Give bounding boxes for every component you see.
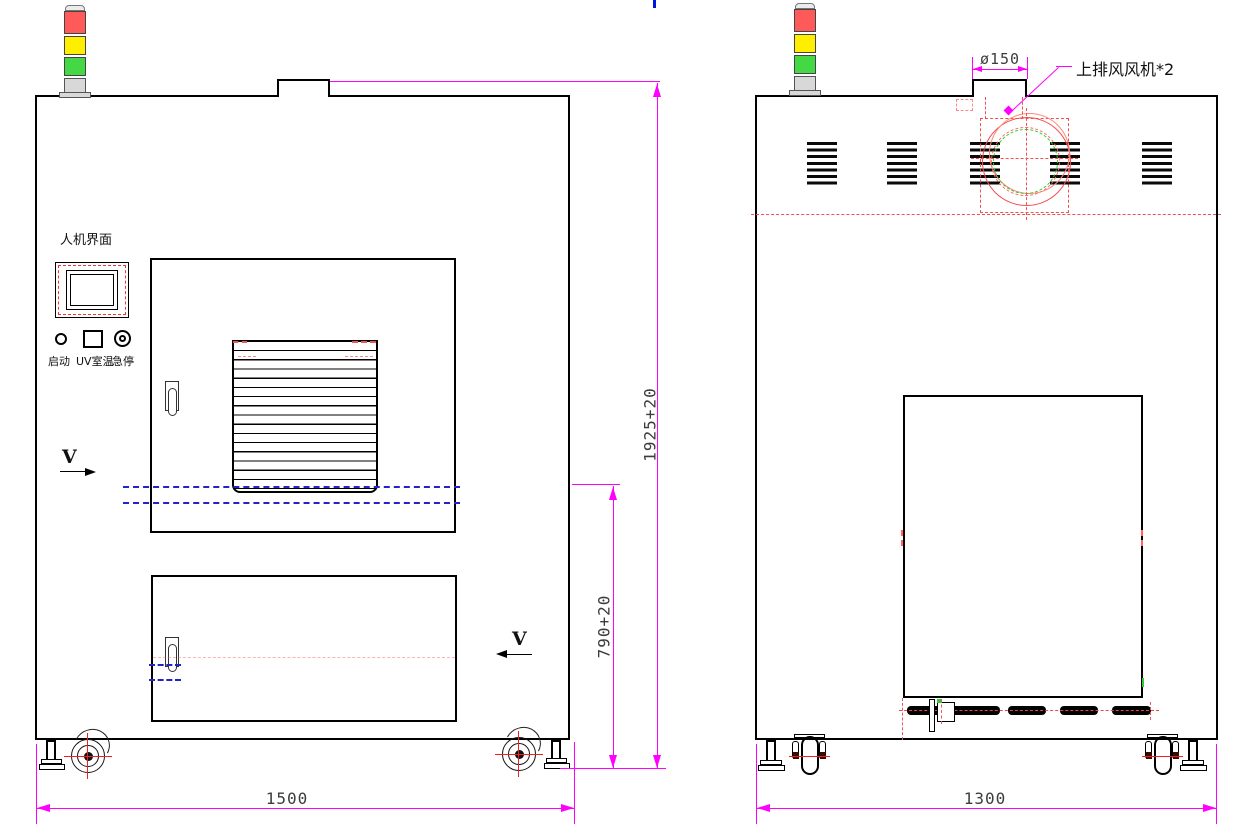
door-edge-mark [901, 530, 903, 546]
lower-door-handle-grip [168, 644, 177, 672]
hidden-shelf-line [123, 502, 460, 504]
rail-hidden-line [902, 698, 903, 740]
uv-temp-label: UV室温 [76, 353, 114, 369]
caster-centerline [518, 731, 519, 777]
front-tower-green-lamp-icon [64, 57, 86, 76]
caster-centerline [495, 754, 543, 755]
front-exhaust-duct [277, 79, 330, 97]
start-button-icon [55, 333, 67, 345]
louver-hinge-mark [345, 356, 373, 357]
section-marker-v1-line [60, 471, 87, 472]
vent-louver-group [807, 142, 837, 188]
vent-louver-group [887, 142, 917, 188]
extension-line [560, 768, 666, 769]
duct-flange-hidden [956, 99, 973, 111]
side-exhaust-duct [972, 79, 1027, 97]
rail-bracket-block [937, 702, 955, 722]
door-edge-mark [1141, 530, 1143, 546]
extension-line [756, 744, 757, 824]
leveling-foot-pad [758, 765, 785, 771]
section-marker-v2: V [512, 628, 527, 650]
dim-arrow-icon [609, 487, 617, 500]
rail-bracket-plate [929, 699, 935, 732]
side-tower-flange [789, 90, 821, 96]
front-tower-base [64, 78, 86, 93]
section-marker-v1: V [62, 446, 77, 468]
side-tower-base [794, 76, 816, 91]
front-tower-yellow-lamp-icon [64, 36, 86, 55]
front-tower-flange [59, 92, 91, 98]
leveling-foot [1188, 740, 1198, 762]
louver-hinge-mark [352, 341, 376, 343]
leader-line [1056, 66, 1072, 67]
extension-line [1216, 744, 1217, 824]
hidden-line-short [149, 679, 181, 681]
front-tower-red-lamp-icon [64, 11, 86, 34]
dim-line-1300 [756, 808, 1216, 809]
section-arrow-left-icon [496, 650, 507, 658]
plenum-hidden-line [751, 214, 1221, 215]
machine-engineering-drawing: 人机界面 启动 UV室温 急停 V V [0, 0, 1238, 824]
section-marker-v2-line [505, 654, 532, 655]
fan-centerline [1026, 108, 1027, 220]
side-door [903, 395, 1143, 698]
louver-hinge-mark [233, 341, 247, 343]
leveling-foot-pad [1180, 765, 1207, 771]
caster-centerline [87, 733, 88, 779]
caster-centerline [789, 756, 830, 757]
dim-arrow-icon [653, 755, 661, 768]
estop-label: 急停 [112, 353, 134, 369]
extension-line [36, 744, 37, 824]
fan-callout-label: 上排风风机*2 [1076, 56, 1174, 80]
dim-arrow-icon [609, 755, 617, 768]
rail-bracket-hidden-line [941, 699, 942, 724]
dim-text-fan-diameter: ø150 [970, 50, 1030, 68]
door-green-tick [1142, 678, 1144, 687]
vent-louver-group [1142, 142, 1172, 188]
dim-arrow-icon [653, 84, 661, 97]
front-lower-door [151, 575, 457, 722]
dim-arrow-icon [757, 804, 770, 812]
side-tower-yellow-lamp-icon [794, 34, 816, 53]
duct-hidden-line [985, 97, 986, 119]
uv-temp-switch-icon [83, 330, 103, 348]
dim-text-1925: 1925+20 [641, 379, 660, 471]
caster-centerline [64, 756, 112, 757]
hmi-screen-display [70, 274, 114, 306]
hidden-center-line [153, 657, 455, 658]
leveling-foot [46, 740, 56, 761]
side-tower-red-lamp-icon [794, 9, 816, 32]
fan-centerline [971, 158, 1078, 159]
dim-arrow-icon [561, 804, 574, 812]
hidden-line-short [149, 664, 181, 666]
rail-hidden-line [1150, 702, 1151, 720]
hidden-shelf-line [123, 486, 460, 488]
upper-door-handle-grip [168, 388, 177, 416]
side-tower-green-lamp-icon [794, 55, 816, 74]
leveling-foot-pad [39, 764, 65, 770]
duct-hidden-line [1022, 97, 1023, 119]
extension-line [574, 742, 575, 824]
extension-line [572, 484, 620, 485]
leveling-foot [766, 740, 776, 762]
leveling-foot [551, 740, 561, 760]
louver-hinge-mark [238, 356, 256, 357]
dim-text-790: 790+20 [595, 585, 614, 669]
reference-tick [653, 0, 656, 8]
dim-line-1500 [36, 808, 574, 809]
section-arrow-right-icon [85, 468, 96, 476]
start-button-label: 启动 [48, 353, 70, 369]
dim-arrow-icon [37, 804, 50, 812]
estop-button-inner [119, 335, 126, 342]
dim-arrow-icon [1203, 804, 1216, 812]
dim-text-1300: 1300 [945, 789, 1025, 808]
caster-centerline [1142, 756, 1183, 757]
extension-line [330, 81, 660, 82]
hmi-label: 人机界面 [60, 229, 112, 248]
dim-text-1500: 1500 [247, 789, 327, 808]
front-louver-window [232, 340, 378, 493]
